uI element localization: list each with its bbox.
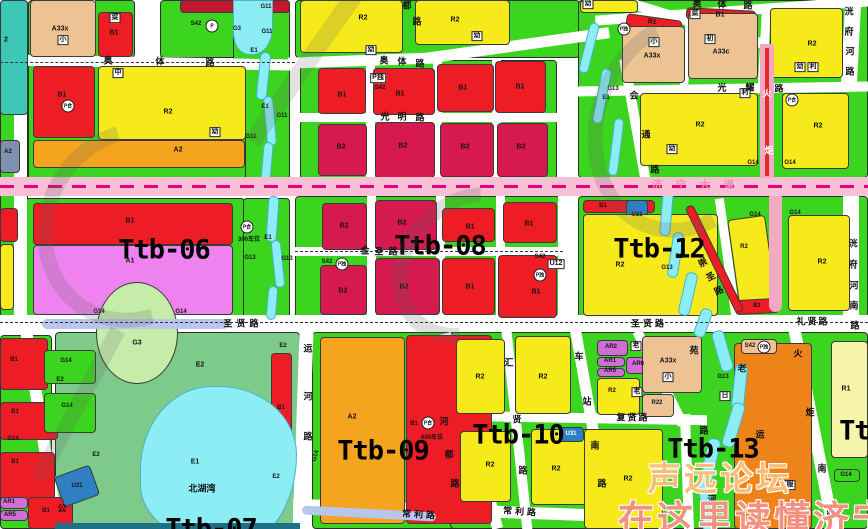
facility-icon: 小: [663, 372, 674, 382]
facility-icon: P合: [422, 417, 435, 430]
facility-icon: P合: [786, 94, 799, 107]
map-label: 光: [380, 113, 389, 122]
map-label: 2: [4, 37, 8, 44]
map-label: 公: [57, 505, 66, 514]
map-label: 站: [582, 398, 591, 407]
map-label: G13: [661, 265, 672, 271]
district-code-label: Ttb: [839, 418, 868, 445]
map-label: G14: [789, 210, 800, 216]
facility-icon: 老: [631, 341, 642, 351]
district-code-label: Ttb-12: [613, 236, 705, 263]
map-label: 圣贤路: [631, 320, 667, 329]
map-label: G3: [132, 340, 141, 347]
map-label: G14: [784, 160, 795, 166]
map-label: 南: [849, 302, 858, 311]
map-label: 汇: [504, 359, 513, 368]
map-label: AR2: [605, 344, 617, 350]
map-label: 运: [303, 345, 312, 354]
map-label: S42: [191, 21, 202, 27]
map-label: G11: [261, 29, 272, 35]
facility-icon: 老: [632, 387, 643, 397]
map-label: R2: [552, 466, 561, 473]
map-label: AR6: [632, 361, 644, 367]
map-label: 路: [412, 18, 421, 27]
map-label: G14: [7, 436, 18, 442]
map-label: R2: [624, 476, 633, 483]
parcel-b2: [375, 122, 435, 178]
facility-icon: P合: [241, 221, 254, 234]
map-label: 洸: [848, 240, 857, 249]
map-label: G11: [260, 4, 271, 10]
map-label: 老: [737, 365, 746, 374]
map-label: E1: [264, 235, 271, 241]
map-label: B1: [277, 405, 285, 411]
parcel-r2: [415, 0, 510, 45]
map-label: 复贤路: [616, 414, 649, 423]
map-label: 河: [303, 393, 312, 402]
map-label: G14: [749, 212, 760, 218]
facility-icon: 中: [113, 68, 124, 78]
map-label: B1: [516, 84, 525, 91]
facility-icon: 幼: [472, 31, 483, 41]
map-label: 路: [597, 480, 606, 489]
parcel-r2: [770, 8, 843, 78]
parcel-b1: [0, 338, 48, 390]
map-label: B2: [340, 223, 349, 230]
map-label: A2: [348, 414, 357, 421]
map-label: AR5: [604, 368, 616, 374]
map-label: E1: [250, 48, 257, 54]
parcel-b1: [0, 208, 18, 242]
map-label: B2: [461, 144, 470, 151]
map-label: 奥: [103, 57, 112, 66]
facility-icon: P: [206, 20, 219, 33]
map-label: 体: [717, 1, 726, 10]
map-label: E2: [56, 377, 63, 383]
map-label: B1: [459, 85, 468, 92]
map-label: 圣: [374, 248, 383, 257]
zoning-map-canvas: 小菜中幼幼幼P独幼菜小初幼利利幼老老小日服P合PP独P合P合P独P独P合P独U1…: [0, 0, 868, 529]
parcel-slate: [0, 140, 20, 173]
map-label: 奥: [379, 57, 388, 66]
map-label: B2: [337, 144, 346, 151]
map-label: A33x: [52, 26, 69, 33]
map-label: 南: [590, 442, 599, 451]
map-label: 府: [844, 28, 853, 37]
map-label: R2: [476, 374, 485, 381]
map-label: R2: [539, 374, 548, 381]
map-label: 北湖湾: [188, 485, 215, 494]
map-label: B1: [396, 91, 405, 98]
map-label: B1: [110, 30, 119, 37]
map-label: 苑: [689, 347, 698, 356]
map-label: 南: [817, 465, 826, 474]
map-label: R2: [808, 41, 817, 48]
map-label: AR1: [3, 499, 15, 505]
boundary-dashline: [0, 62, 295, 63]
map-label: 礼贤路: [796, 318, 829, 327]
map-label: B1: [410, 421, 418, 427]
map-label: 洸: [844, 8, 853, 17]
map-label: E1: [191, 459, 200, 466]
map-label: B1: [58, 92, 67, 99]
map-label: 圣贤路: [223, 320, 262, 329]
facility-icon: P独: [336, 258, 349, 271]
facility-icon: P合: [62, 100, 75, 113]
facility-icon: P独: [618, 23, 631, 36]
map-label: AR1: [604, 358, 616, 364]
facility-icon: 日: [720, 391, 731, 401]
map-label: 路: [205, 59, 214, 68]
map-label: 都: [402, 2, 411, 11]
map-label: R2: [608, 388, 616, 394]
map-label: R2: [818, 259, 827, 266]
map-label: 体: [155, 58, 164, 67]
map-label: R2: [164, 109, 173, 116]
map-label: 车: [574, 353, 583, 362]
map-label: 体: [397, 58, 406, 67]
map-label: G13: [281, 256, 292, 262]
map-label: 明: [397, 113, 406, 122]
map-label: 路: [415, 114, 424, 123]
map-label: A2: [4, 149, 12, 155]
map-label: 河: [849, 282, 858, 291]
map-label: 路: [743, 2, 752, 11]
road-overlay: [769, 196, 782, 312]
map-label: B2: [517, 144, 526, 151]
map-label: 路: [303, 433, 312, 442]
map-label: S42: [322, 259, 333, 265]
facility-icon: P独: [370, 73, 386, 83]
map-label: G14: [840, 472, 851, 478]
water: [140, 386, 297, 529]
parcel-a2: [320, 337, 405, 524]
map-label: S42: [745, 343, 756, 349]
map-label: B1: [10, 357, 18, 363]
map-label: 河: [439, 418, 448, 427]
parcel-teal: [0, 0, 28, 115]
map-label: 路: [845, 68, 854, 77]
map-label: R2: [359, 15, 368, 22]
map-label: R2: [740, 244, 748, 250]
map-label: U31: [565, 431, 576, 437]
map-label: 火: [793, 350, 802, 359]
map-label: E2: [279, 343, 286, 349]
map-label: S42: [375, 85, 386, 91]
road: [558, 196, 572, 318]
map-label: E2: [92, 452, 99, 458]
district-code-label: Ttb-09: [337, 438, 429, 465]
facility-icon: 菜: [110, 13, 121, 23]
map-label: 炬: [805, 409, 814, 418]
map-label: 金: [360, 247, 369, 256]
map-label: B1: [599, 203, 607, 209]
map-label: 300车位: [238, 237, 260, 243]
map-label: R2: [814, 123, 823, 130]
map-label: A33x: [660, 358, 677, 365]
map-label: B1: [11, 409, 19, 415]
map-label: 路: [450, 480, 459, 489]
map-label: E2: [272, 474, 279, 480]
map-label: U21: [71, 483, 82, 489]
map-label: 河: [845, 48, 854, 57]
map-label: 都: [444, 451, 453, 460]
facility-icon: 小: [58, 35, 69, 45]
parcel-r2: [0, 244, 14, 310]
map-label: E2: [196, 362, 205, 369]
map-label: 奥: [692, 0, 701, 9]
facility-icon: 幼: [210, 127, 221, 137]
map-label: B1: [42, 508, 50, 514]
map-label: G3: [233, 26, 241, 32]
facility-icon: 幼: [366, 45, 377, 55]
map-label: R22: [651, 400, 662, 406]
district-code-label: Ttb-07: [165, 516, 257, 529]
watermark-slogan: 在这里读懂济宁: [618, 490, 868, 529]
facility-icon: U12: [548, 259, 565, 269]
map-label: R2: [451, 17, 460, 24]
district-code-label: Ttb-10: [472, 422, 564, 449]
map-label: 路: [415, 60, 424, 69]
map-label: B2: [399, 143, 408, 150]
map-label: B1: [753, 303, 761, 309]
facility-icon: 幼: [795, 62, 806, 72]
map-label: R2: [486, 462, 495, 469]
map-label: 路: [850, 322, 859, 331]
map-label: B1: [11, 459, 19, 465]
map-label: 府: [848, 261, 857, 270]
map-label: G13: [244, 255, 255, 261]
facility-icon: 幼: [583, 0, 594, 9]
map-label: R1: [842, 386, 851, 393]
map-label: AR5: [4, 512, 16, 518]
map-label: B2: [339, 288, 348, 295]
map-label: G14: [60, 358, 71, 364]
map-label: B2: [398, 220, 407, 227]
map-label: G13: [717, 374, 728, 380]
facility-icon: P独: [758, 341, 771, 354]
map-label: B1: [338, 92, 347, 99]
facility-icon: 利: [808, 62, 819, 72]
map-label: 路: [518, 467, 527, 476]
